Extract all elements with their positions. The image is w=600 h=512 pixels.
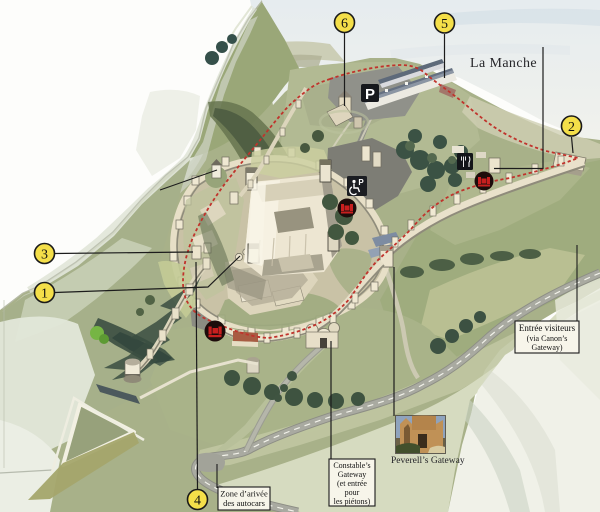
svg-text:4: 4 (194, 494, 201, 509)
svg-text:Entrée visiteurs: Entrée visiteurs (519, 323, 576, 333)
svg-text:3: 3 (41, 248, 48, 263)
svg-text:6: 6 (341, 17, 348, 32)
svg-text:5: 5 (441, 17, 448, 32)
svg-text:(via Canon’s: (via Canon’s (527, 334, 568, 343)
svg-text:P: P (365, 86, 375, 103)
svg-text:Gateway): Gateway) (531, 343, 562, 352)
svg-text:pour: pour (345, 488, 360, 497)
svg-text:2: 2 (568, 120, 575, 135)
svg-text:La Manche: La Manche (470, 56, 537, 71)
svg-text:des autocars: des autocars (223, 498, 265, 508)
svg-text:Zone d’arivée: Zone d’arivée (220, 489, 268, 499)
svg-text:Peverell’s Gateway: Peverell’s Gateway (391, 456, 465, 466)
svg-text:(et entrée: (et entrée (337, 479, 367, 488)
svg-text:les piétons): les piétons) (334, 497, 371, 506)
svg-text:P: P (358, 178, 364, 187)
svg-text:1: 1 (41, 287, 48, 302)
svg-text:Gateway: Gateway (338, 470, 366, 479)
svg-text:Constable’s: Constable’s (333, 461, 370, 470)
